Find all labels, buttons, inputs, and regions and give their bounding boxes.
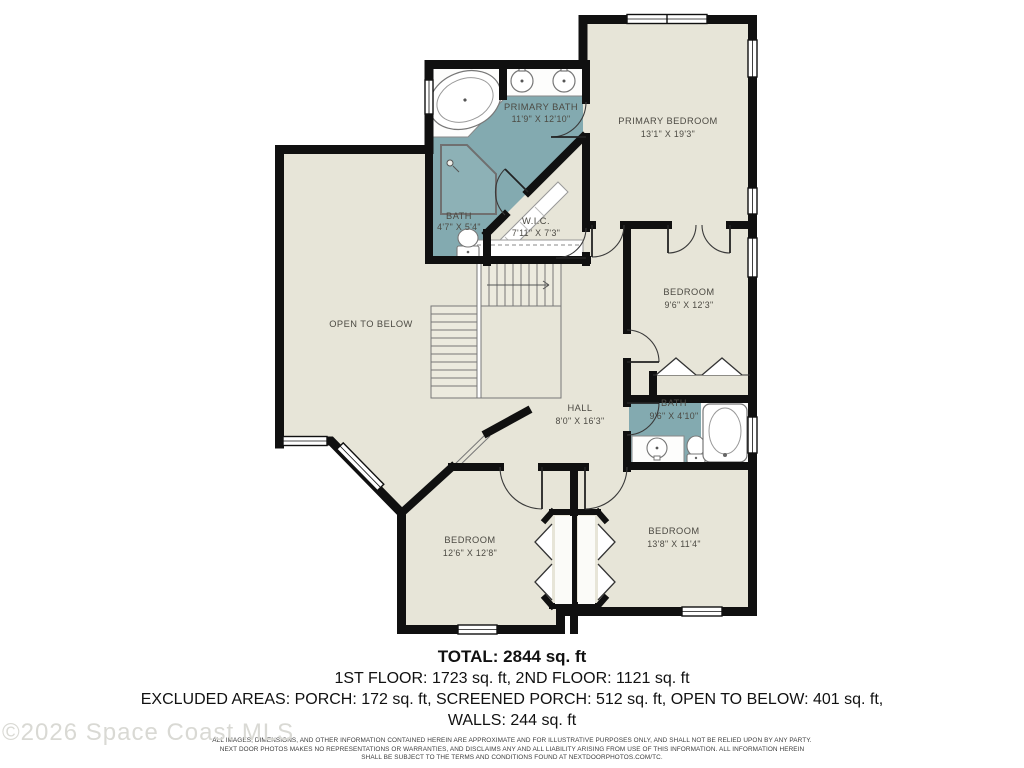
summary-floors: 1ST FLOOR: 1723 sq. ft, 2ND FLOOR: 1121 … [0,668,1024,689]
window-primary-bath-left [425,80,433,114]
window-primary-bedroom-right-2 [748,188,757,214]
dims-primary-bath: 11'9" X 12'10" [512,114,571,124]
window-bedroom-left-bottom [458,625,497,634]
window-bedroom-upper-right [748,238,757,277]
toilet-icon-small-bath [457,229,479,259]
summary-excluded: EXCLUDED AREAS: PORCH: 172 sq. ft, SCREE… [0,689,1024,710]
tub-icon-hall-bath [703,404,747,462]
dims-wic: 7'11" X 7'3" [512,228,560,238]
dims-primary-bedroom: 13'1" X 19'3" [641,129,695,139]
window-primary-bedroom-right-1 [748,40,757,77]
dims-bath-hall: 9'6" X 4'10" [649,411,698,421]
mls-watermark: ©2026 Space Coast MLS [2,719,294,747]
floor-plan-page: PRIMARY BATH 11'9" X 12'10" PRIMARY BEDR… [0,0,1024,768]
window-open-below-bottom [283,437,327,446]
label-hall: HALL [567,403,592,413]
dims-bedroom-left: 12'6" X 12'8" [443,548,497,558]
label-primary-bath: PRIMARY BATH [504,102,578,112]
dims-bedroom-right: 13'8" X 11'4" [647,539,701,549]
dims-bath-small: 4'7" X 5'4" [437,222,481,232]
label-bath-small: BATH [446,211,472,221]
label-primary-bedroom: PRIMARY BEDROOM [618,116,717,126]
label-wic: W.I.C. [522,216,550,226]
toilet-icon-hall-bath [687,436,705,463]
label-bedroom-right: BEDROOM [648,526,699,536]
label-bedroom-upper: BEDROOM [663,287,714,297]
window-hall-bath-right [748,417,757,453]
label-bath-hall: BATH [661,398,687,408]
dims-hall: 8'0" X 16'3" [555,416,604,426]
label-open-to-below: OPEN TO BELOW [329,319,413,329]
window-primary-bedroom-top [627,15,707,24]
disclaimer-line-3: SHALL BE SUBJECT TO THE TERMS AND CONDIT… [0,754,1024,763]
window-bedroom-right-bottom [682,607,722,616]
label-bedroom-left: BEDROOM [444,535,495,545]
summary-total: TOTAL: 2844 sq. ft [0,646,1024,668]
dims-bedroom-upper: 9'6" X 12'3" [664,300,713,310]
